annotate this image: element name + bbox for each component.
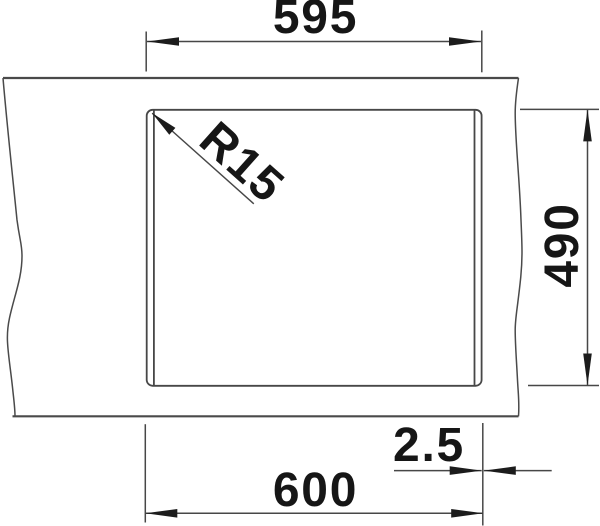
svg-text:595: 595 (273, 0, 358, 44)
svg-text:2.5: 2.5 (393, 419, 465, 472)
svg-text:490: 490 (536, 202, 589, 287)
svg-text:600: 600 (273, 464, 358, 517)
